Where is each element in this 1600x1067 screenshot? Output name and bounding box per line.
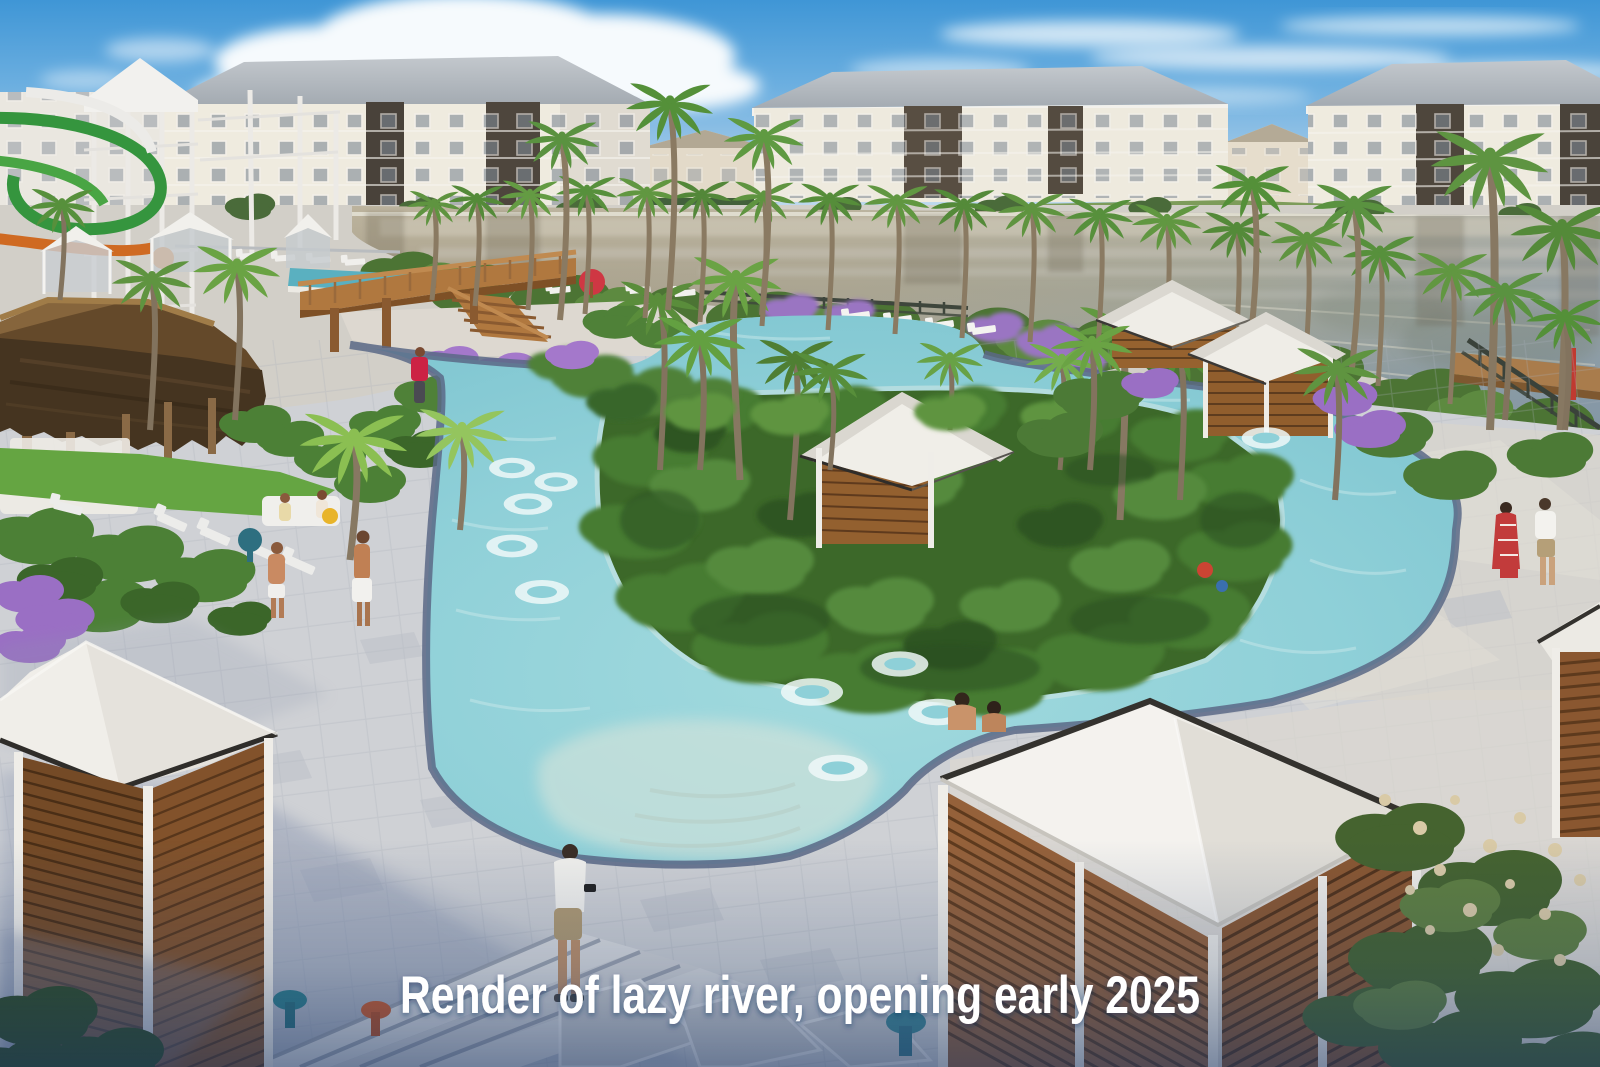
svg-text:Render of lazy river, opening: Render of lazy river, opening early 2025 bbox=[400, 966, 1200, 1025]
